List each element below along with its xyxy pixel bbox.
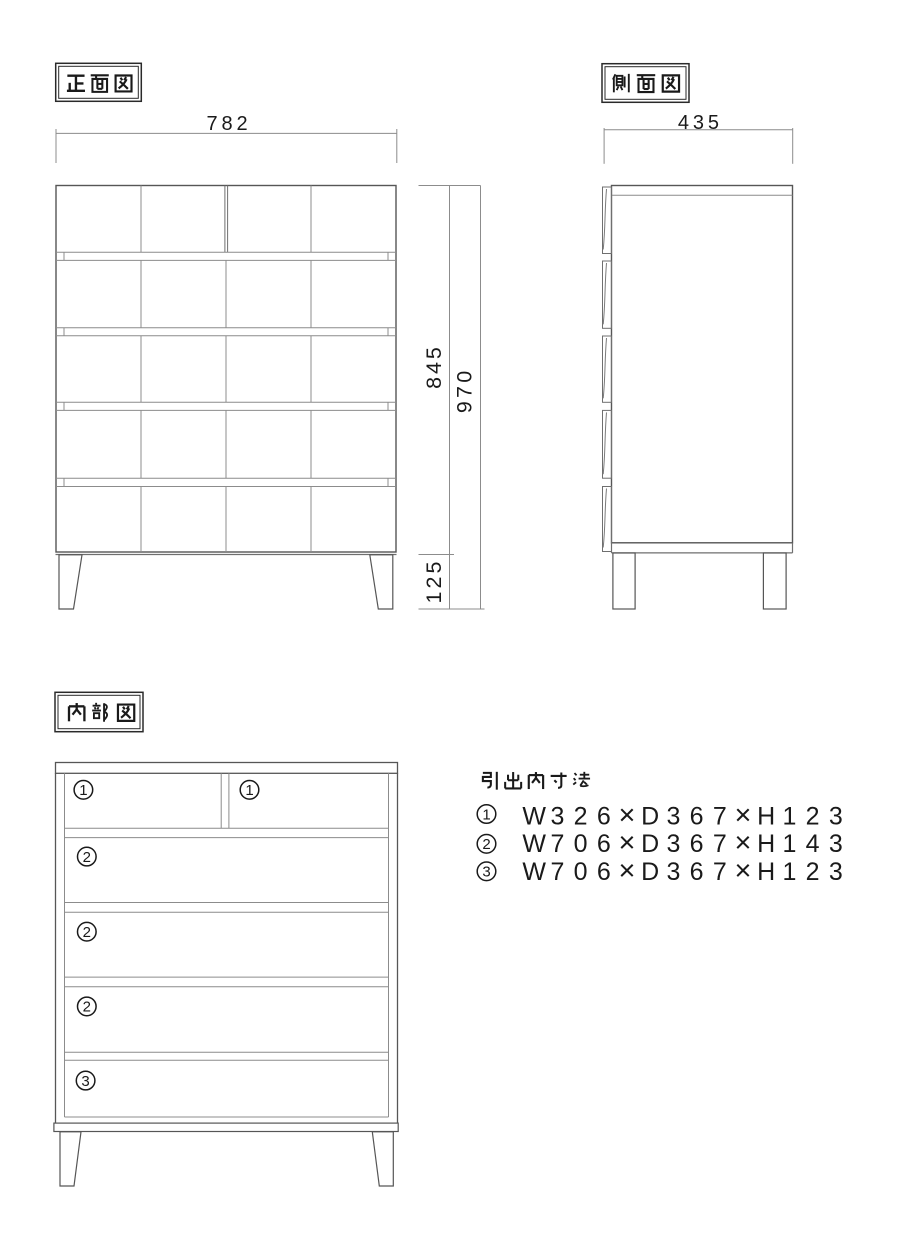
- svg-text:3: 3: [666, 802, 680, 830]
- svg-text:×: ×: [619, 855, 636, 887]
- svg-text:2: 2: [83, 999, 91, 1016]
- svg-text:2: 2: [482, 836, 490, 853]
- svg-text:3: 3: [829, 802, 843, 830]
- svg-text:6: 6: [597, 830, 611, 858]
- svg-text:7: 7: [713, 830, 727, 858]
- svg-text:3: 3: [693, 112, 704, 134]
- svg-text:1: 1: [482, 806, 490, 823]
- svg-text:6: 6: [690, 830, 704, 858]
- svg-text:2: 2: [83, 924, 91, 941]
- svg-text:4: 4: [422, 362, 446, 374]
- svg-text:1: 1: [245, 782, 253, 799]
- svg-text:2: 2: [83, 849, 91, 866]
- svg-text:1: 1: [782, 858, 796, 886]
- svg-text:7: 7: [713, 802, 727, 830]
- svg-text:H: H: [757, 802, 775, 830]
- svg-text:8: 8: [221, 113, 232, 135]
- svg-text:2: 2: [422, 577, 446, 589]
- svg-text:6: 6: [690, 802, 704, 830]
- svg-text:3: 3: [666, 830, 680, 858]
- svg-text:8: 8: [422, 377, 446, 389]
- svg-text:0: 0: [574, 830, 588, 858]
- svg-text:3: 3: [666, 858, 680, 886]
- svg-text:6: 6: [690, 858, 704, 886]
- svg-text:D: D: [641, 858, 659, 886]
- svg-text:4: 4: [678, 112, 689, 134]
- svg-text:1: 1: [782, 802, 796, 830]
- svg-text:3: 3: [81, 1073, 89, 1090]
- svg-text:5: 5: [708, 112, 719, 134]
- svg-text:D: D: [641, 830, 659, 858]
- svg-text:D: D: [641, 802, 659, 830]
- svg-text:2: 2: [806, 858, 820, 886]
- svg-text:6: 6: [597, 858, 611, 886]
- svg-text:7: 7: [453, 386, 477, 398]
- svg-text:7: 7: [713, 858, 727, 886]
- svg-text:W: W: [522, 830, 546, 858]
- svg-text:2: 2: [806, 802, 820, 830]
- svg-text:3: 3: [482, 864, 490, 881]
- svg-text:H: H: [757, 830, 775, 858]
- svg-text:0: 0: [574, 858, 588, 886]
- svg-text:W: W: [522, 858, 546, 886]
- svg-text:×: ×: [735, 855, 752, 887]
- svg-text:W: W: [522, 802, 546, 830]
- svg-text:2: 2: [236, 113, 247, 135]
- svg-text:5: 5: [422, 561, 446, 573]
- svg-text:7: 7: [206, 113, 217, 135]
- svg-text:6: 6: [597, 802, 611, 830]
- svg-text:1: 1: [422, 592, 446, 604]
- svg-text:4: 4: [806, 830, 820, 858]
- svg-text:3: 3: [829, 858, 843, 886]
- svg-text:2: 2: [574, 802, 588, 830]
- svg-text:3: 3: [829, 830, 843, 858]
- svg-text:0: 0: [453, 371, 477, 383]
- svg-text:1: 1: [79, 782, 87, 799]
- svg-text:7: 7: [550, 830, 564, 858]
- svg-text:9: 9: [453, 401, 477, 413]
- svg-text:5: 5: [422, 347, 446, 359]
- svg-text:3: 3: [550, 802, 564, 830]
- svg-text:1: 1: [782, 830, 796, 858]
- svg-text:H: H: [757, 858, 775, 886]
- svg-text:7: 7: [550, 858, 564, 886]
